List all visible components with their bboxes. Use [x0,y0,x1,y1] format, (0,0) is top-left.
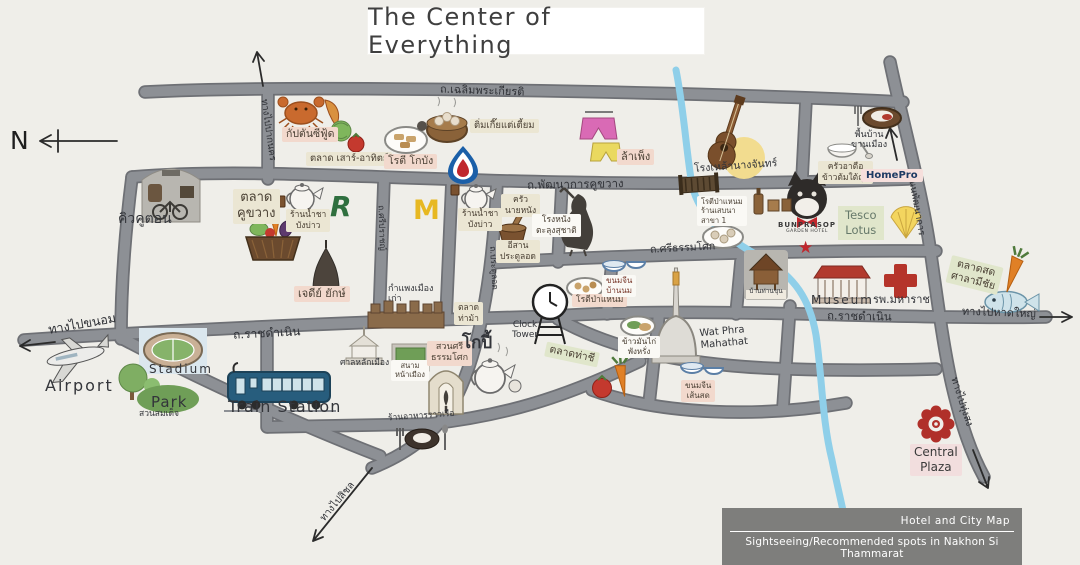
poi-label-maharat-hospital: รพ.มหาราช [873,294,930,307]
map-canvas: M R [0,0,1080,565]
poi-label-kiw-khu-ton: คิวคูตอน [118,211,172,227]
poi-label-sanam-na-mueang: สนาม หน้าเมือง [391,360,429,381]
poi-label-chedi-yak: เจดีย์ ยักษ์ [294,286,350,302]
local-dish-icon [855,106,901,128]
khanom-jeen-bowls-icon [603,261,645,272]
r-logo-icon: R [330,190,352,223]
poi-label-roti-kobang: โรตี โกบัง [384,154,437,169]
road-label-to-hatyai: ทางไปหาดใหญ่ [962,306,1036,320]
poi-label-museum: Museum [811,294,874,308]
poi-label-talat-thama: ตลาด ท่าม้า [454,302,483,325]
poi-label-lampheng: ล้าเพ็ง [617,149,654,165]
map-title: The Center of Everything [368,8,704,54]
central-plaza-logo-icon [918,406,955,443]
poi-label-stadium: Stadium [149,363,213,377]
poi-label-park-thai: สวนสมเด็จ [139,410,179,420]
city-map: M R [0,0,1080,565]
bridge-icon [678,172,719,195]
poi-label-homepro: HomePro [861,169,923,182]
poi-label-kopi: โกปี้ [462,334,492,354]
poi-label-khanom-jeen-bannom: ขนมจีน บ้านนม [602,275,636,297]
road-label-ratchadamnoen-west: ถ.ราชดำเนิน [233,325,301,341]
poi-label-nang-talung: โรงหนัง ตะลุงสุชาติ [532,214,581,237]
road-label-phatthanakan-khukhwang: ถ.พัฒนาการคูขวาง [527,178,624,191]
poi-label-bunprasop: BUNPRASOP GARDEN HOTEL [778,221,836,235]
poi-label-dimsum: ติ่มเกี๊ยแต่เตี้ยม [470,119,539,133]
poi-label-san-lak-mueang: ศาลหลักเมือง [340,359,389,369]
teapot-icon-1 [276,183,323,211]
compass-north-label: N [10,126,29,155]
poi-label-train-station: Train Station [228,398,341,416]
poi-label-central-plaza: Central Plaza [910,444,962,476]
bunprasop-sub: GARDEN HOTEL [778,229,836,234]
poi-label-khao-man-kai: ข้าวมันไก่ พังหรั่ง [618,336,660,358]
old-city-wall-icon [368,301,444,328]
poi-label-tea-bangbao-2: ร้านน้ำชา บังบ่าว [458,208,502,231]
legend-line2: Sightseeing/Recommended spots in Nakhon … [730,536,1014,560]
road-label-chaloem-phrakiat: ถ.เฉลิมพระเกียรติ [440,84,525,98]
bottles-icon [754,188,791,214]
poi-label-clock-tower: Clock Tower [512,320,538,341]
bunprasop-star-icon: ★ [798,238,813,258]
poi-label-wat-phra-mahathat: Wat Phra Mahathat [699,324,748,351]
legend-box: Hotel and City Map Sightseeing/Recommend… [722,508,1022,565]
poi-label-captain-seafood: กัปตันซีฟู้ด [282,127,338,142]
road-label-ratchadamnoen-east: ถ.ราชดำเนิน [827,310,892,323]
legend-divider [730,531,1014,532]
si-thammasok-arch-icon [429,371,463,414]
poi-label-local-food: พื้นบ้าน ขานเมือง [851,130,887,151]
mcdonalds-logo-icon: M [413,195,440,226]
dimsum-basket-icon [427,97,467,142]
poi-label-khanom-jeen-sensot: ขนมจีน เส้นสด [681,380,715,402]
shorts-icons [580,112,622,161]
poi-label-baan-than-khun: บ้านท่านขุน [746,288,786,295]
poi-label-roti-panaem-branch: โรตีป่าแหนม ร้านเสบนา สาขา 1 [697,196,747,226]
poi-label-talat-khukhwang: ตลาด คูขวาง [233,189,280,224]
road-label-si-prat: ถ.ศรีปราชญ์ [376,205,386,251]
poi-label-isan-pratulot: อีสาน ประตูลอด [496,240,540,263]
clock-tower-icon [533,285,567,344]
legend-line1: Hotel and City Map [730,513,1014,531]
roti-plate-icon [385,121,427,153]
carrot-icon-salamichai [1001,246,1029,295]
poi-label-tea-bangbao-1: ร้านน้ำชา บังบ่าว [286,209,330,232]
ptt-flame-icon [448,146,478,184]
khao-man-kai-plate-icon [621,317,655,336]
poi-label-airport: Airport [45,377,114,395]
poi-label-weekend-market: ตลาด เสาร์-อาทิตย์ [306,152,392,166]
map-title-text: The Center of Everything [368,3,704,59]
poi-label-tesco-lotus: Tesco Lotus [838,206,884,240]
poi-label-city-wall: กำแพงเมือง เก่า [388,284,433,305]
